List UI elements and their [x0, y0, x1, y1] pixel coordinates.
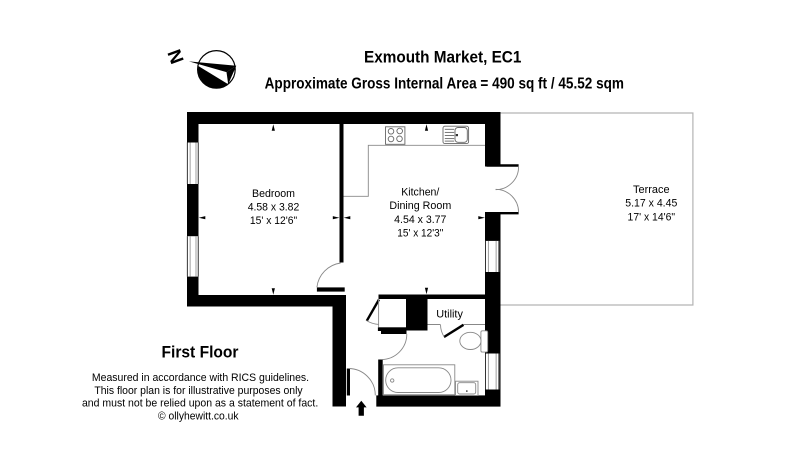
svg-text:Exmouth Market, EC1: Exmouth Market, EC1 — [364, 47, 521, 66]
svg-text:Approximate Gross Internal Are: Approximate Gross Internal Area = 490 sq… — [265, 75, 624, 92]
svg-text:Bedroom: Bedroom — [252, 188, 295, 200]
svg-text:Kitchen/: Kitchen/ — [401, 186, 440, 198]
svg-text:Measured in accordance with RI: Measured in accordance with RICS guideli… — [92, 372, 309, 384]
svg-text:4.54 x 3.77: 4.54 x 3.77 — [394, 214, 446, 226]
svg-text:17' x 14'6": 17' x 14'6" — [628, 211, 676, 223]
svg-text:Dining Room: Dining Room — [389, 200, 451, 212]
svg-text:Terrace: Terrace — [633, 184, 670, 196]
svg-text:4.58 x 3.82: 4.58 x 3.82 — [248, 202, 300, 214]
svg-text:15' x 12'6": 15' x 12'6" — [250, 215, 297, 227]
svg-text:First Floor: First Floor — [162, 342, 239, 361]
svg-text:This floor plan is for illustr: This floor plan is for illustrative purp… — [94, 385, 303, 397]
svg-text:15' x 12'3": 15' x 12'3" — [397, 228, 443, 240]
svg-text:© ollyhewitt.co.uk: © ollyhewitt.co.uk — [158, 411, 239, 423]
svg-text:and must not be relied upon as: and must not be relied upon as a stateme… — [82, 398, 318, 410]
svg-text:5.17 x 4.45: 5.17 x 4.45 — [625, 198, 677, 210]
svg-text:Utility: Utility — [436, 309, 463, 321]
